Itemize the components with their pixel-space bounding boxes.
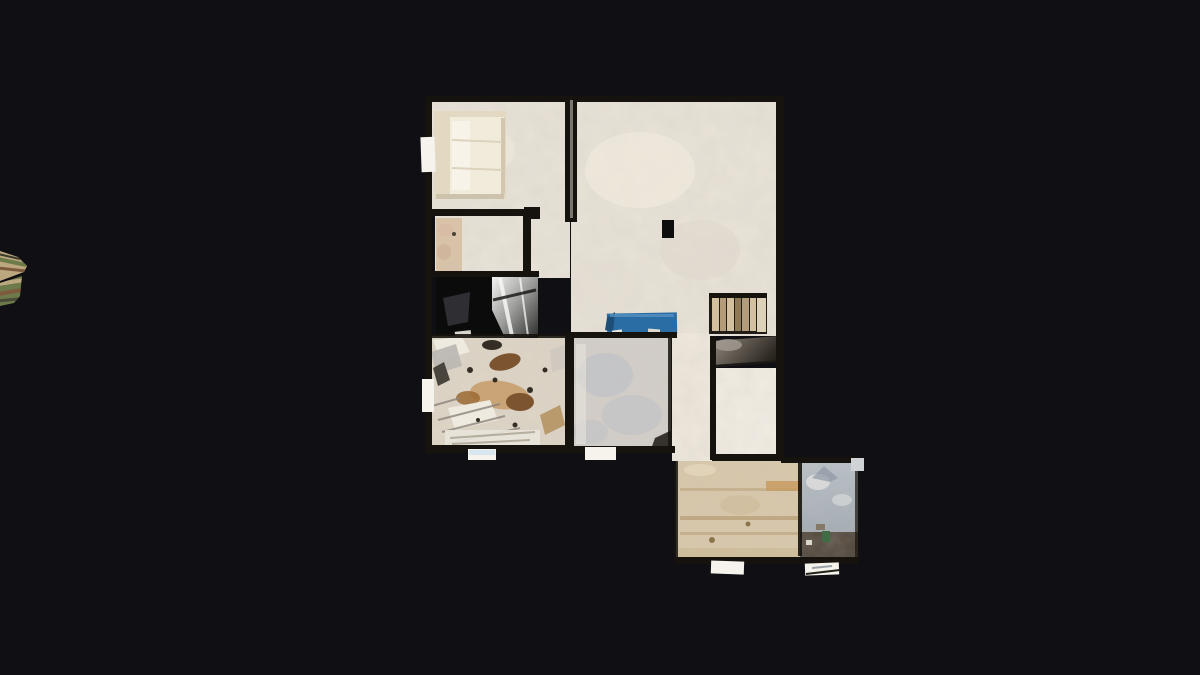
bed-pillows: [452, 121, 470, 190]
wall-segment: [524, 207, 540, 219]
closet-room: [436, 218, 462, 272]
bedroom: [434, 111, 506, 199]
wall-segment: [798, 463, 802, 556]
texture-speck: [709, 537, 715, 543]
wall-segment: [668, 336, 672, 448]
texture-blob: [437, 244, 451, 260]
texture-blob: [438, 224, 454, 236]
wall-segment: [523, 209, 531, 276]
sill-tab: [585, 447, 616, 460]
texture-speck: [746, 522, 751, 527]
stair-landing: [712, 336, 783, 367]
wall-segment: [712, 454, 784, 461]
sill-tab: [851, 458, 864, 471]
wall-segment: [855, 461, 859, 558]
wall-segment: [781, 457, 859, 463]
wall-segment: [432, 334, 568, 338]
debris-brown: [506, 393, 534, 411]
sill-tab: [422, 379, 434, 412]
wall-segment: [709, 293, 767, 298]
light-streak: [576, 344, 586, 444]
fragment-stripe: [0, 299, 18, 301]
bed-seam: [501, 118, 505, 194]
wall-segment: [427, 209, 537, 216]
wall-segment: [427, 271, 539, 277]
wall-segment: [565, 446, 675, 453]
wall-segment: [565, 332, 677, 338]
blue-bench: [605, 312, 677, 335]
wall-segment: [710, 336, 716, 460]
sill-tab: [805, 562, 840, 575]
wall-segment: [776, 96, 784, 338]
texture-blob: [442, 261, 458, 271]
double-wall-core: [570, 100, 573, 218]
debris-dark: [482, 340, 502, 350]
tan-band: [766, 481, 802, 491]
sill-tab: [420, 137, 435, 172]
sill-tab-tint: [469, 450, 495, 455]
texture-speck: [816, 524, 825, 530]
floorplan-canvas[interactable]: [0, 0, 1200, 675]
texture-speck: [452, 232, 456, 236]
wall-segment: [565, 332, 574, 452]
texture-speck: [840, 536, 847, 542]
sill-tab: [711, 560, 744, 574]
stairs: [709, 295, 767, 334]
landing-highlight: [714, 339, 742, 351]
texture-blob: [720, 495, 760, 515]
wall-segment: [776, 332, 784, 460]
texture-blob: [684, 464, 716, 476]
texture-speck: [806, 540, 812, 545]
viewer-viewport: [0, 0, 1200, 675]
wall-segment: [674, 461, 678, 561]
column: [662, 220, 674, 238]
bed-foot-shadow: [436, 194, 504, 199]
wall-segment: [427, 96, 784, 102]
green-speck: [822, 531, 830, 542]
wall-segment: [425, 445, 570, 453]
cloud-patch: [832, 494, 852, 506]
